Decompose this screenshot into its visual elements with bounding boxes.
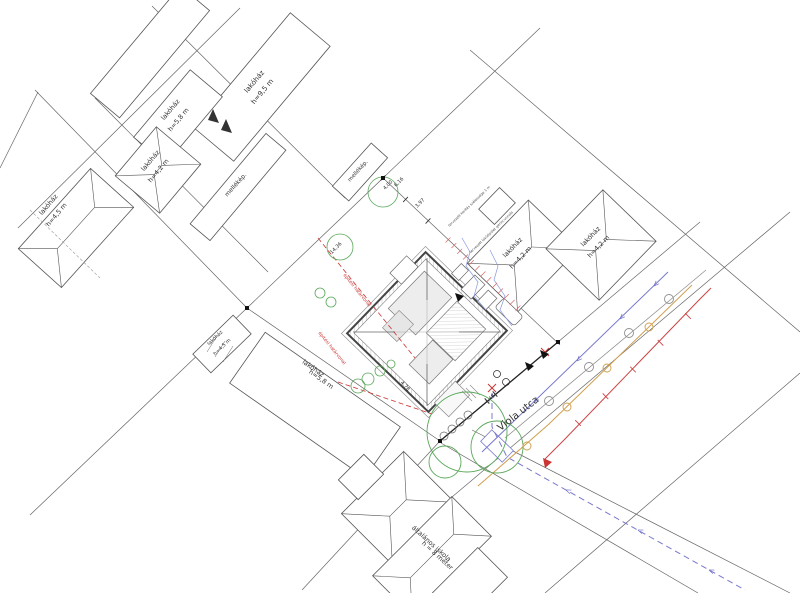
water-marker: V: [706, 567, 715, 575]
shrub-circle: [315, 288, 325, 298]
parcel-line: [545, 373, 800, 593]
street-edge-line: [472, 430, 790, 593]
fence-hatch-marks: [457, 249, 462, 254]
parcel-line: [0, 92, 38, 168]
corner-marker: [556, 340, 560, 344]
sewer-marker: [625, 329, 634, 338]
limit-label: építési határvonal: [317, 330, 348, 366]
water-marker: V: [617, 313, 626, 322]
water-marker: V: [574, 355, 583, 364]
manhole-circle: [503, 379, 510, 386]
site-plan-page: lakóházh=9,5 mlakóházh=5,8 mlakóházh=4,2…: [0, 0, 800, 593]
sewer-marker: [585, 363, 594, 372]
water-marker: V: [563, 487, 572, 495]
fence-hatch-marks: [446, 237, 451, 242]
dim-label: 4,00: [382, 179, 394, 191]
sewer-marker: [665, 295, 674, 304]
tree-circle: [429, 446, 461, 478]
electric-tick-marks: [630, 367, 636, 373]
shrub-circle: [326, 297, 336, 307]
tree-circle: [427, 392, 507, 472]
electric-tick-marks: [658, 340, 664, 346]
manhole-circle: [494, 371, 501, 378]
tree-circle: [368, 177, 398, 207]
electric-tick-marks: [685, 313, 691, 319]
shrub-circle: [362, 373, 374, 385]
shrub-circle: [351, 379, 365, 393]
dim-label: 6,16: [393, 176, 405, 188]
sewer-line: [505, 270, 706, 438]
dim-label: 3,97: [414, 197, 426, 209]
fence-hatch-marks: [451, 243, 456, 248]
corner-marker: [245, 306, 249, 310]
electric-arrow: [543, 458, 552, 468]
limit-label: építési határvonal: [342, 272, 373, 308]
corner-marker: [381, 176, 385, 180]
drawing-layers: lakóházh=9,5 mlakóházh=5,8 mlakóházh=4,2…: [0, 0, 800, 593]
water-marker: V: [635, 527, 644, 535]
water-line-dashed: [492, 393, 745, 590]
dim-label: 14,36: [329, 241, 343, 255]
corner-marker: [438, 439, 442, 443]
site-plan-canvas: lakóházh=9,5 mlakóházh=5,8 mlakóházh=4,2…: [0, 0, 800, 593]
building-outline-lakohaz-45: [18, 168, 133, 287]
